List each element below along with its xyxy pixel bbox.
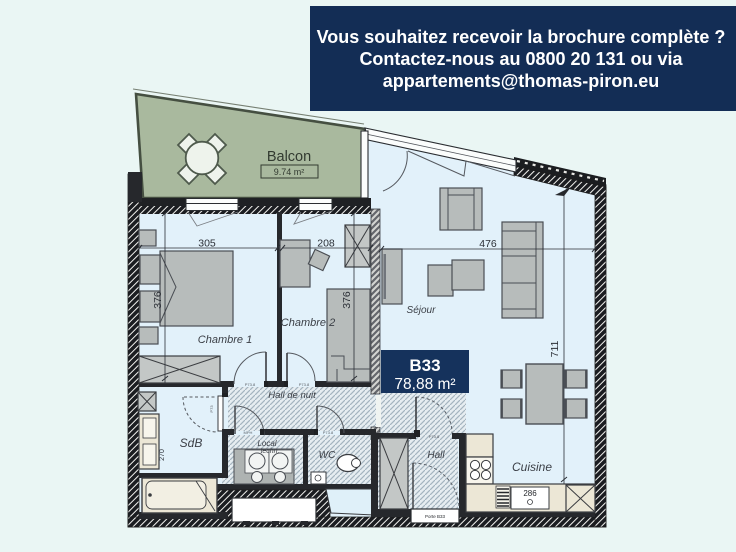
svg-text:78,88 m²: 78,88 m² [394,376,455,393]
svg-text:711: 711 [549,340,561,357]
svg-text:Séjour: Séjour [407,305,437,316]
svg-text:Porte B33: Porte B33 [425,514,446,519]
svg-text:305: 305 [198,238,216,250]
svg-text:Local: Local [257,439,276,448]
svg-text:Cuisine: Cuisine [512,460,552,474]
svg-text:Balcon: Balcon [267,149,311,165]
svg-text:208: 208 [317,238,335,250]
svg-text:techn.: techn. [260,448,279,455]
svg-text:Vous souhaitez recevoir la bro: Vous souhaitez recevoir la brochure comp… [317,27,726,47]
svg-text:MPH: MPH [244,430,253,435]
svg-text:286: 286 [523,489,537,498]
svg-text:Chambre 1: Chambre 1 [198,334,252,346]
svg-text:9.74 m²: 9.74 m² [274,167,305,177]
svg-text:P73: P73 [209,405,214,413]
svg-text:270: 270 [159,449,166,461]
svg-text:P73.8: P73.8 [323,430,334,435]
svg-text:appartements@thomas-piron.eu: appartements@thomas-piron.eu [383,71,660,91]
svg-text:476: 476 [479,238,497,250]
svg-text:B33: B33 [409,356,440,375]
svg-text:SdB: SdB [180,436,203,450]
svg-text:Hall: Hall [427,450,445,461]
svg-text:WC: WC [319,450,336,461]
svg-text:P73.8: P73.8 [429,434,440,439]
svg-text:376: 376 [152,291,164,309]
svg-text:Chambre 2: Chambre 2 [281,317,335,329]
svg-text:Hall de nuit: Hall de nuit [268,390,316,401]
svg-text:P73.8: P73.8 [245,382,256,387]
svg-text:P73.8: P73.8 [299,382,310,387]
svg-text:Contactez-nous au 0800 20 131: Contactez-nous au 0800 20 131 ou via [359,49,683,69]
svg-text:376: 376 [341,291,353,309]
